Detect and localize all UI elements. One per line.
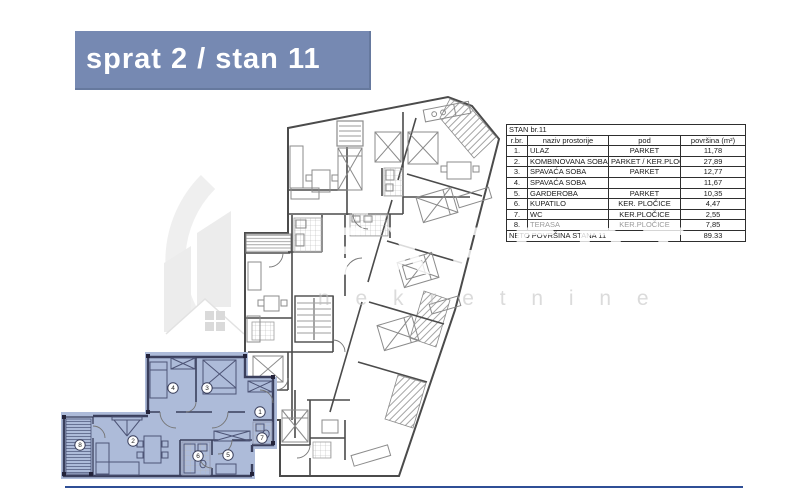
watermark-logo-icon (164, 182, 244, 353)
cell-floor: PARKET / KER.PLOČ (609, 156, 681, 167)
header-pod: pod (609, 135, 681, 146)
room-number: 7 (260, 435, 264, 442)
area-table: STAN br.11 r.br. naziv prostorije pod po… (506, 124, 746, 242)
table-foot: NETO POVRŠINA STANA 11 89.33 (507, 230, 746, 241)
cell-floor: PARKET (609, 167, 681, 178)
cell-floor: KER.PLOČICE (609, 209, 681, 220)
table-head: STAN br.11 r.br. naziv prostorije pod po… (507, 125, 746, 146)
total-value: 89.33 (681, 230, 746, 241)
header-rbr: r.br. (507, 135, 528, 146)
cell-area: 12,77 (681, 167, 746, 178)
cell-name: TERASA (528, 220, 609, 231)
cell-floor: KER. PLOČICE (609, 199, 681, 210)
table-row: 4.SPAVAĆA SOBA11,67 (507, 177, 746, 188)
room-number: 4 (171, 385, 175, 392)
cell-name: KOMBINOVANA SOBA (528, 156, 609, 167)
cell-area: 10,35 (681, 188, 746, 199)
cell-num: 8. (507, 220, 528, 231)
cell-area: 7,85 (681, 220, 746, 231)
table-row: 8.TERASAKER.PLOČICE7,85 (507, 220, 746, 231)
room-number: 1 (258, 409, 262, 416)
table-row: 2.KOMBINOVANA SOBAPARKET / KER.PLOČ27,89 (507, 156, 746, 167)
cell-area: 4,47 (681, 199, 746, 210)
cell-name: ULAZ (528, 146, 609, 157)
cell-floor: PARKET (609, 146, 681, 157)
cell-floor: KER.PLOČICE (609, 220, 681, 231)
cell-name: WC (528, 209, 609, 220)
cell-num: 4. (507, 177, 528, 188)
title-banner: sprat 2 / stan 11 (75, 31, 371, 90)
page: 12345678 STAN br.11 r.br. naziv prostori… (0, 0, 792, 489)
cell-floor (609, 177, 681, 188)
table-total-row: NETO POVRŠINA STANA 11 89.33 (507, 230, 746, 241)
table-row: 7.WCKER.PLOČICE2,55 (507, 209, 746, 220)
cell-num: 2. (507, 156, 528, 167)
total-label: NETO POVRŠINA STANA 11 (507, 230, 681, 241)
cell-name: KUPATILO (528, 199, 609, 210)
table-title-row: STAN br.11 (507, 125, 746, 136)
apartment-11: 12345678 (61, 352, 277, 479)
table-header-row: r.br. naziv prostorije pod površina (m²) (507, 135, 746, 146)
bottom-rule (65, 486, 743, 488)
room-number: 2 (131, 438, 135, 445)
stairwell (295, 296, 333, 342)
table-row: 5.GARDEROBAPARKET10,35 (507, 188, 746, 199)
cell-area: 11,78 (681, 146, 746, 157)
table-rows: 1.ULAZPARKET11,782.KOMBINOVANA SOBAPARKE… (507, 146, 746, 231)
table-title: STAN br.11 (507, 125, 746, 136)
cell-area: 11,67 (681, 177, 746, 188)
cell-num: 6. (507, 199, 528, 210)
room-number: 3 (205, 385, 209, 392)
cell-area: 2,55 (681, 209, 746, 220)
cell-area: 27,89 (681, 156, 746, 167)
cell-name: SPAVAĆA SOBA (528, 167, 609, 178)
room-number: 5 (226, 452, 230, 459)
page-title: sprat 2 / stan 11 (75, 43, 321, 76)
cell-floor: PARKET (609, 188, 681, 199)
table-row: 6.KUPATILOKER. PLOČICE4,47 (507, 199, 746, 210)
header-naziv: naziv prostorije (528, 135, 609, 146)
room-number: 8 (78, 442, 82, 449)
cell-num: 1. (507, 146, 528, 157)
cell-name: GARDEROBA (528, 188, 609, 199)
cell-num: 5. (507, 188, 528, 199)
table-row: 1.ULAZPARKET11,78 (507, 146, 746, 157)
table-row: 3.SPAVAĆA SOBAPARKET12,77 (507, 167, 746, 178)
room-number: 6 (196, 453, 200, 460)
cell-num: 7. (507, 209, 528, 220)
cell-num: 3. (507, 167, 528, 178)
cell-name: SPAVAĆA SOBA (528, 177, 609, 188)
building-outline (245, 97, 499, 476)
header-povrsina: površina (m²) (681, 135, 746, 146)
